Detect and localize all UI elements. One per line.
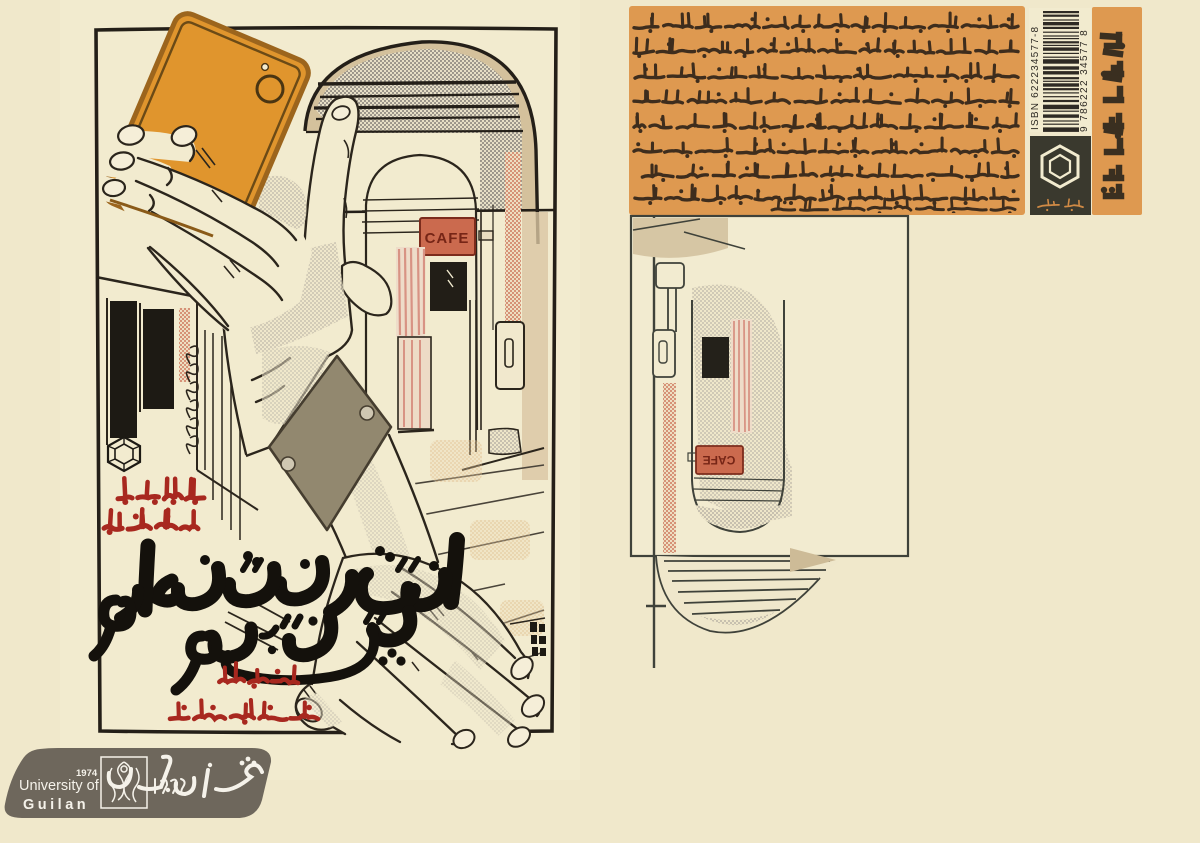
svg-text:ISBN 622234577-8: ISBN 622234577-8 [1030,26,1041,130]
svg-text:CAFE: CAFE [703,453,736,467]
svg-text:Guilan: Guilan [23,797,89,813]
svg-text:9 786222 34577 8: 9 786222 34577 8 [1079,29,1090,132]
svg-text:University of: University of [19,778,100,794]
svg-text:CAFE: CAFE [425,230,470,247]
